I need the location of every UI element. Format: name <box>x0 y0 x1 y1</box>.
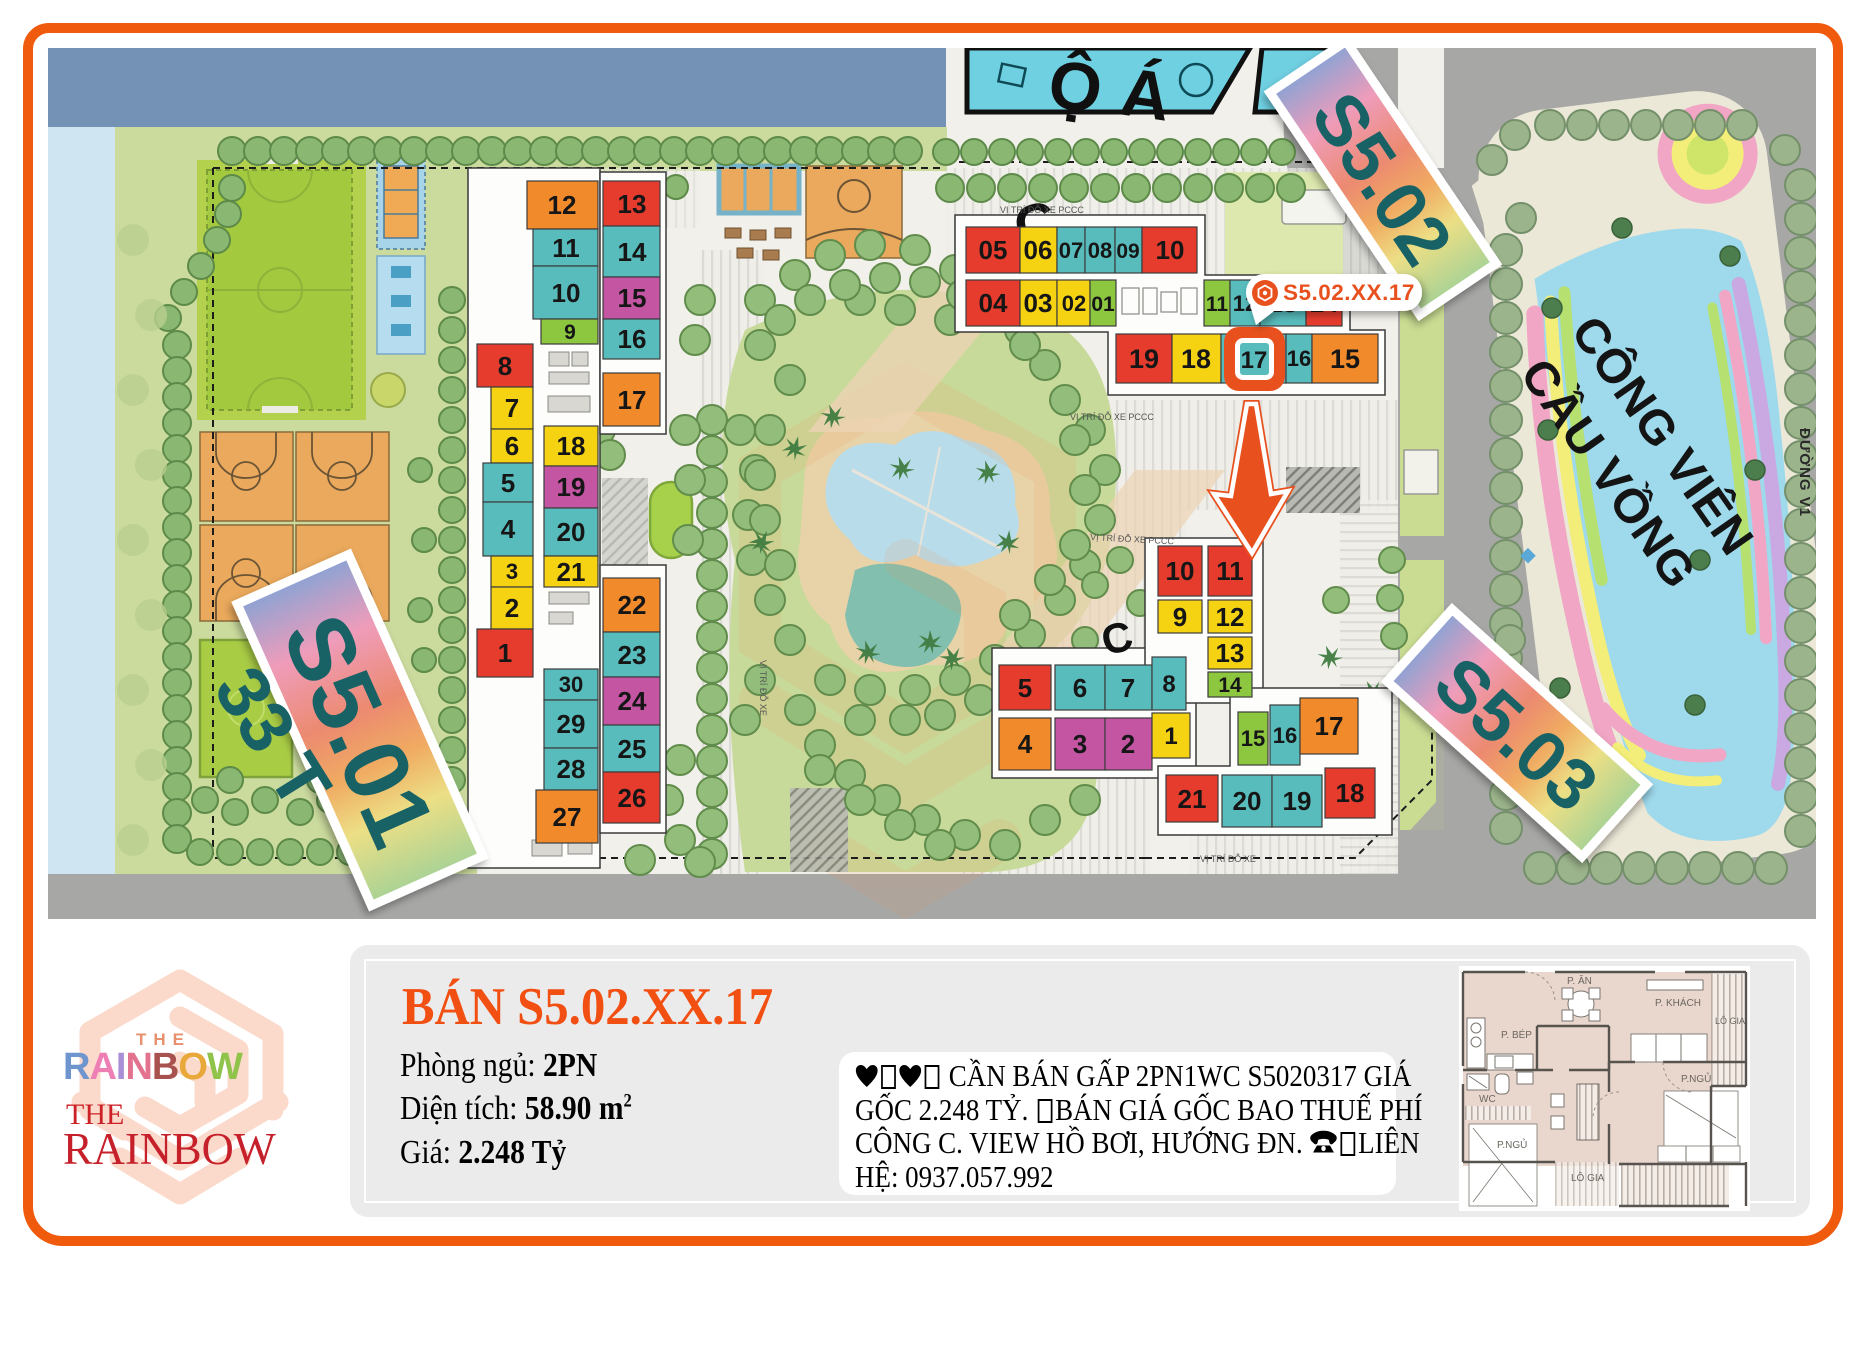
svg-text:17: 17 <box>1315 711 1344 741</box>
svg-text:19: 19 <box>1129 344 1159 374</box>
svg-text:LÔ GIA: LÔ GIA <box>1571 1171 1605 1184</box>
svg-text:P. ĂN: P. ĂN <box>1567 974 1592 987</box>
svg-text:17: 17 <box>618 385 647 415</box>
svg-text:25: 25 <box>618 734 647 764</box>
svg-text:ĐƯỜNG V1: ĐƯỜNG V1 <box>1796 428 1814 517</box>
svg-text:8: 8 <box>498 351 512 381</box>
svg-text:13: 13 <box>618 189 647 219</box>
svg-text:4: 4 <box>1018 729 1033 759</box>
svg-text:23: 23 <box>618 640 647 670</box>
svg-text:18: 18 <box>557 431 586 461</box>
svg-text:8: 8 <box>1162 671 1175 698</box>
svg-text:15: 15 <box>618 283 647 313</box>
svg-text:11: 11 <box>1216 556 1244 586</box>
svg-text:21: 21 <box>1178 784 1207 814</box>
svg-text:11: 11 <box>1206 293 1229 316</box>
svg-text:VỊ TRÍ ĐỖ XE PCCC: VỊ TRÍ ĐỖ XE PCCC <box>1000 204 1084 215</box>
svg-text:VỊ TRÍ ĐỖ XE: VỊ TRÍ ĐỖ XE <box>758 660 769 716</box>
svg-text:06: 06 <box>1024 235 1053 265</box>
svg-text:10: 10 <box>552 278 581 308</box>
svg-text:10: 10 <box>1156 235 1185 265</box>
svg-text:17: 17 <box>1241 347 1268 374</box>
svg-text:16: 16 <box>1273 723 1297 748</box>
svg-text:10: 10 <box>1166 556 1195 586</box>
svg-text:9: 9 <box>564 321 576 344</box>
svg-text:11: 11 <box>552 233 580 263</box>
svg-text:03: 03 <box>1024 288 1053 318</box>
svg-text:22: 22 <box>618 590 647 620</box>
svg-text:07: 07 <box>1059 238 1083 263</box>
svg-text:9: 9 <box>1173 602 1187 632</box>
svg-text:WC: WC <box>1479 1094 1496 1105</box>
svg-text:13: 13 <box>1216 638 1245 668</box>
svg-text:7: 7 <box>505 393 519 423</box>
svg-text:09: 09 <box>1116 240 1139 263</box>
svg-text:3: 3 <box>506 559 518 584</box>
svg-text:14: 14 <box>618 237 647 267</box>
svg-text:14: 14 <box>1218 674 1242 697</box>
svg-text:16: 16 <box>618 324 647 354</box>
svg-text:5: 5 <box>501 468 515 498</box>
svg-text:S5.02.XX.17: S5.02.XX.17 <box>1283 280 1415 305</box>
svg-text:02: 02 <box>1062 291 1086 316</box>
svg-text:3: 3 <box>1073 729 1087 759</box>
svg-text:4: 4 <box>501 514 516 544</box>
svg-text:12: 12 <box>548 190 577 220</box>
svg-text:01: 01 <box>1091 293 1115 316</box>
svg-text:18: 18 <box>1181 344 1211 374</box>
svg-text:08: 08 <box>1088 238 1112 263</box>
svg-text:P.NGỦ: P.NGỦ <box>1497 1138 1527 1151</box>
svg-text:1: 1 <box>1164 723 1177 750</box>
svg-text:26: 26 <box>618 783 647 813</box>
svg-text:04: 04 <box>979 288 1008 318</box>
svg-text:15: 15 <box>1241 726 1265 751</box>
svg-text:P. BÉP: P. BÉP <box>1501 1028 1532 1041</box>
svg-text:Á: Á <box>1116 54 1175 136</box>
svg-text:18: 18 <box>1336 778 1365 808</box>
svg-text:05: 05 <box>979 235 1008 265</box>
svg-text:P.NGỦ: P.NGỦ <box>1681 1072 1711 1085</box>
svg-text:VỊ TRÍ ĐỖ XE: VỊ TRÍ ĐỖ XE <box>1200 853 1256 864</box>
svg-text:5: 5 <box>1018 673 1032 703</box>
svg-text:21: 21 <box>557 557 586 587</box>
svg-text:28: 28 <box>557 754 586 784</box>
svg-text:1: 1 <box>498 638 512 668</box>
svg-text:P. KHÁCH: P. KHÁCH <box>1655 996 1701 1009</box>
svg-text:15: 15 <box>1330 344 1360 374</box>
svg-text:24: 24 <box>618 686 647 716</box>
svg-text:6: 6 <box>505 431 519 461</box>
svg-text:30: 30 <box>559 672 583 697</box>
svg-text:27: 27 <box>553 802 582 832</box>
svg-text:Ộ: Ộ <box>1044 48 1107 128</box>
svg-text:2: 2 <box>505 593 519 623</box>
svg-text:VỊ TRÍ ĐỖ XE PCCC: VỊ TRÍ ĐỖ XE PCCC <box>1070 411 1154 422</box>
svg-text:12: 12 <box>1216 602 1245 632</box>
svg-text:20: 20 <box>557 517 586 547</box>
svg-text:20: 20 <box>1233 786 1262 816</box>
svg-text:6: 6 <box>1073 673 1087 703</box>
svg-text:LÔ GIA: LÔ GIA <box>1715 1016 1745 1026</box>
svg-text:19: 19 <box>1283 786 1312 816</box>
svg-text:7: 7 <box>1121 673 1135 703</box>
svg-text:16: 16 <box>1287 346 1311 371</box>
svg-text:29: 29 <box>557 709 586 739</box>
svg-text:19: 19 <box>557 472 586 502</box>
svg-text:2: 2 <box>1121 729 1135 759</box>
